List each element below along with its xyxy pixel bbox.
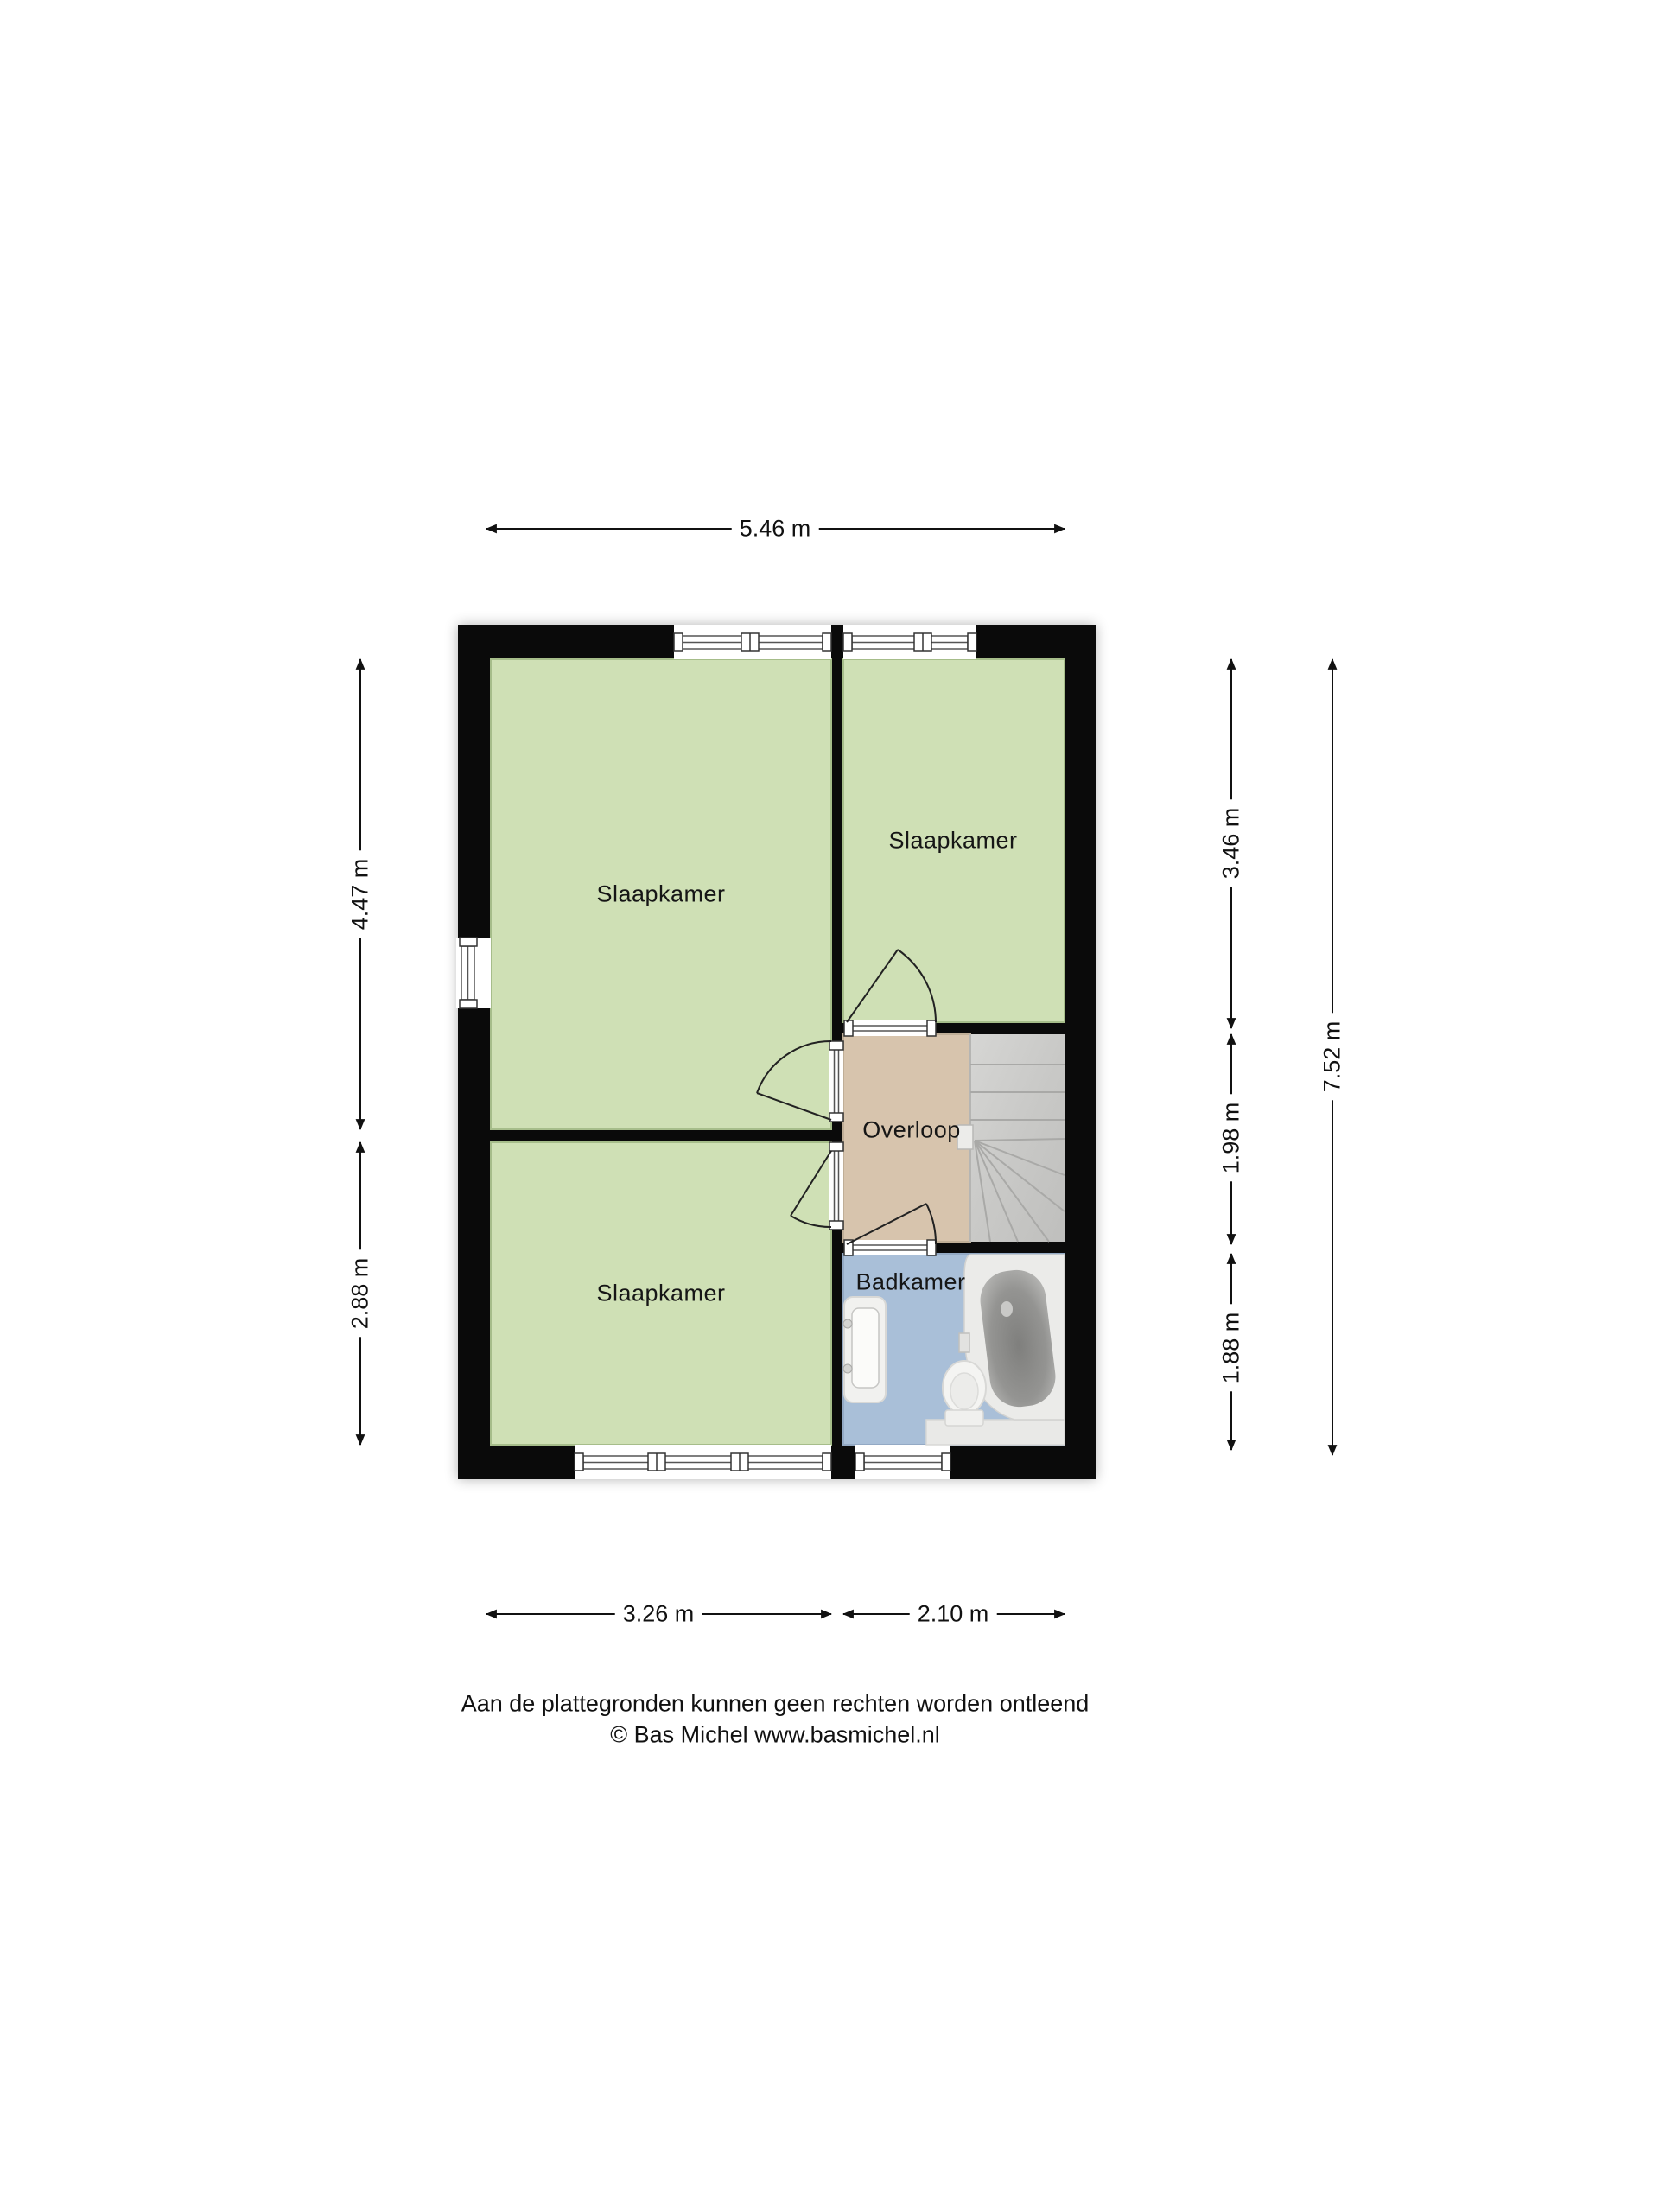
dim-label-left-upper: 4.47 m	[346, 851, 375, 938]
window-bottom-bedroom	[575, 1445, 831, 1479]
window-top-right	[843, 625, 976, 659]
wall-left	[458, 625, 491, 1479]
footer-credit: © Bas Michel www.basmichel.nl	[610, 1722, 940, 1749]
dim-label-bottom-left: 3.26 m	[615, 1600, 702, 1629]
window-bottom-bathroom	[855, 1445, 950, 1479]
dim-label-right-middle: 1.98 m	[1217, 1095, 1246, 1182]
dim-label-right-top: 3.46 m	[1217, 800, 1246, 887]
window-top-left	[674, 625, 831, 659]
room-label-bedroom-top-right: Slaapkamer	[888, 828, 1017, 855]
wall-middle-vertical	[831, 625, 843, 1445]
room-label-bedroom-bottom-left: Slaapkamer	[596, 1281, 725, 1307]
room-label-bedroom-large: Slaapkamer	[596, 881, 725, 908]
dim-label-right-total: 7.52 m	[1319, 1014, 1347, 1101]
dim-label-left-lower: 2.88 m	[346, 1250, 375, 1338]
dim-label-right-bottom: 1.88 m	[1217, 1305, 1246, 1392]
toilet-icon	[943, 1361, 986, 1426]
dim-label-bottom-right: 2.10 m	[910, 1600, 997, 1629]
room-label-bathroom: Badkamer	[855, 1269, 965, 1296]
dim-label-top-width: 5.46 m	[732, 515, 819, 543]
sink-icon	[843, 1297, 886, 1402]
wall-left-partition	[486, 1129, 832, 1142]
bath-faucet-icon	[959, 1333, 969, 1352]
room-label-landing: Overloop	[862, 1117, 961, 1144]
sink-faucet-icon	[843, 1319, 852, 1328]
sink-faucet-icon	[843, 1364, 852, 1373]
window-left-wall	[456, 938, 491, 1008]
footer-disclaimer: Aan de plattegronden kunnen geen rechten…	[461, 1691, 1090, 1718]
floorplan-drawing	[0, 0, 1659, 2212]
floorplan-page: { "floorplan": { "title_none": "", "room…	[0, 0, 1659, 2212]
wall-right	[1065, 625, 1096, 1479]
